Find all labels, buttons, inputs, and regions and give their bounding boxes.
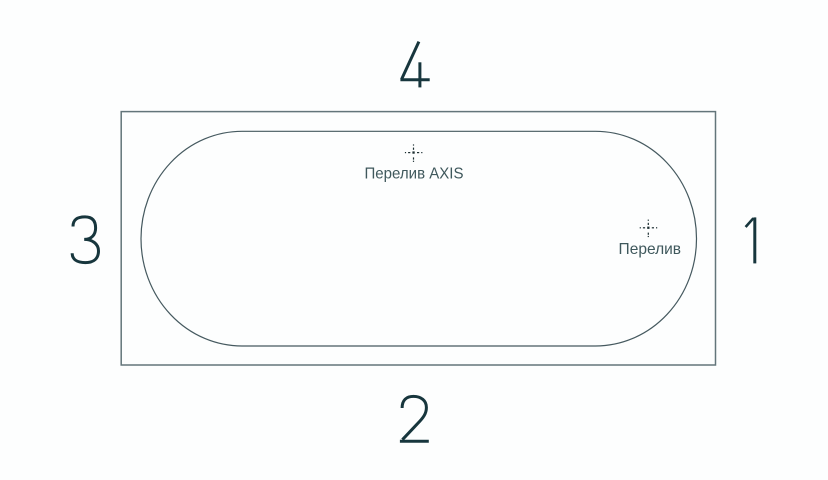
svg-text:Перелив: Перелив bbox=[619, 241, 682, 258]
svg-text:Перелив AXIS: Перелив AXIS bbox=[365, 165, 464, 182]
